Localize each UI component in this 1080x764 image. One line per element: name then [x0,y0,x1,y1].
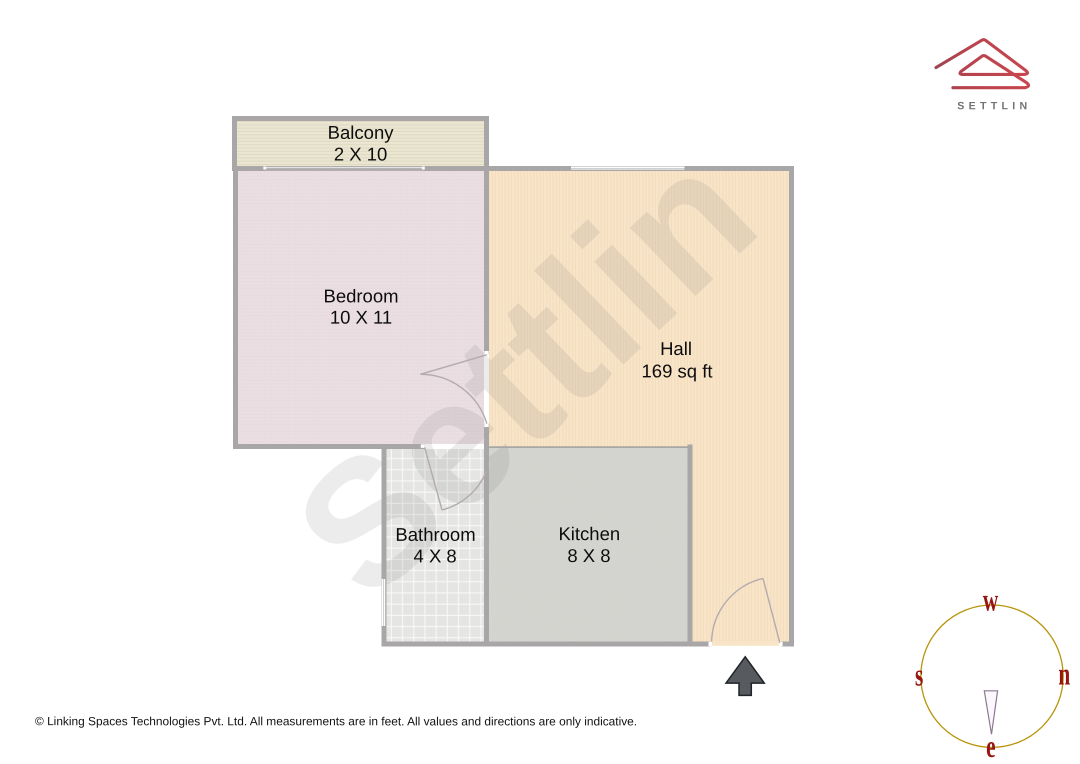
svg-text:8 X 8: 8 X 8 [567,545,610,566]
svg-text:© Linking Spaces Technologies: © Linking Spaces Technologies Pvt. Ltd. … [35,714,637,728]
svg-text:Bathroom: Bathroom [395,524,475,545]
svg-text:Kitchen: Kitchen [558,523,620,544]
svg-text:e: e [986,729,995,764]
svg-text:SETTLIN: SETTLIN [957,100,1031,112]
svg-text:Hall: Hall [660,338,692,359]
svg-text:n: n [1058,656,1070,692]
svg-text:4 X 8: 4 X 8 [414,545,457,566]
svg-text:2 X 10: 2 X 10 [334,144,388,165]
svg-text:s: s [915,657,923,693]
svg-text:Balcony: Balcony [328,122,395,143]
svg-text:10 X 11: 10 X 11 [330,307,392,328]
svg-text:169 sq ft: 169 sq ft [642,360,713,381]
svg-text:Bedroom: Bedroom [323,285,398,306]
svg-text:w: w [983,582,999,618]
